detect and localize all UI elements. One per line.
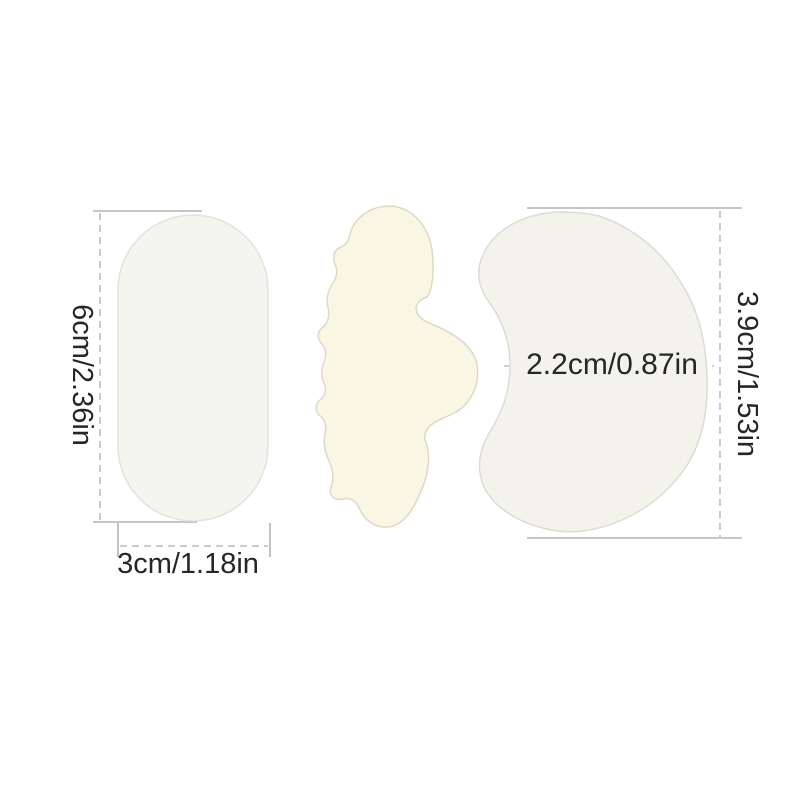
oval-height-label: 6cm/2.36in [67, 295, 97, 455]
product-dimension-diagram: 6cm/2.36in 3cm/1.18in 2.2cm/0.87in 3.9cm… [0, 0, 800, 800]
contour-pad-shape [316, 206, 477, 527]
pads-and-dimension-lines [0, 0, 800, 800]
oval-pad-shape [118, 215, 268, 521]
crescent-width-label: 2.2cm/0.87in [522, 350, 702, 380]
crescent-height-label: 3.9cm/1.53in [732, 291, 762, 451]
oval-width-label: 3cm/1.18in [108, 549, 268, 579]
